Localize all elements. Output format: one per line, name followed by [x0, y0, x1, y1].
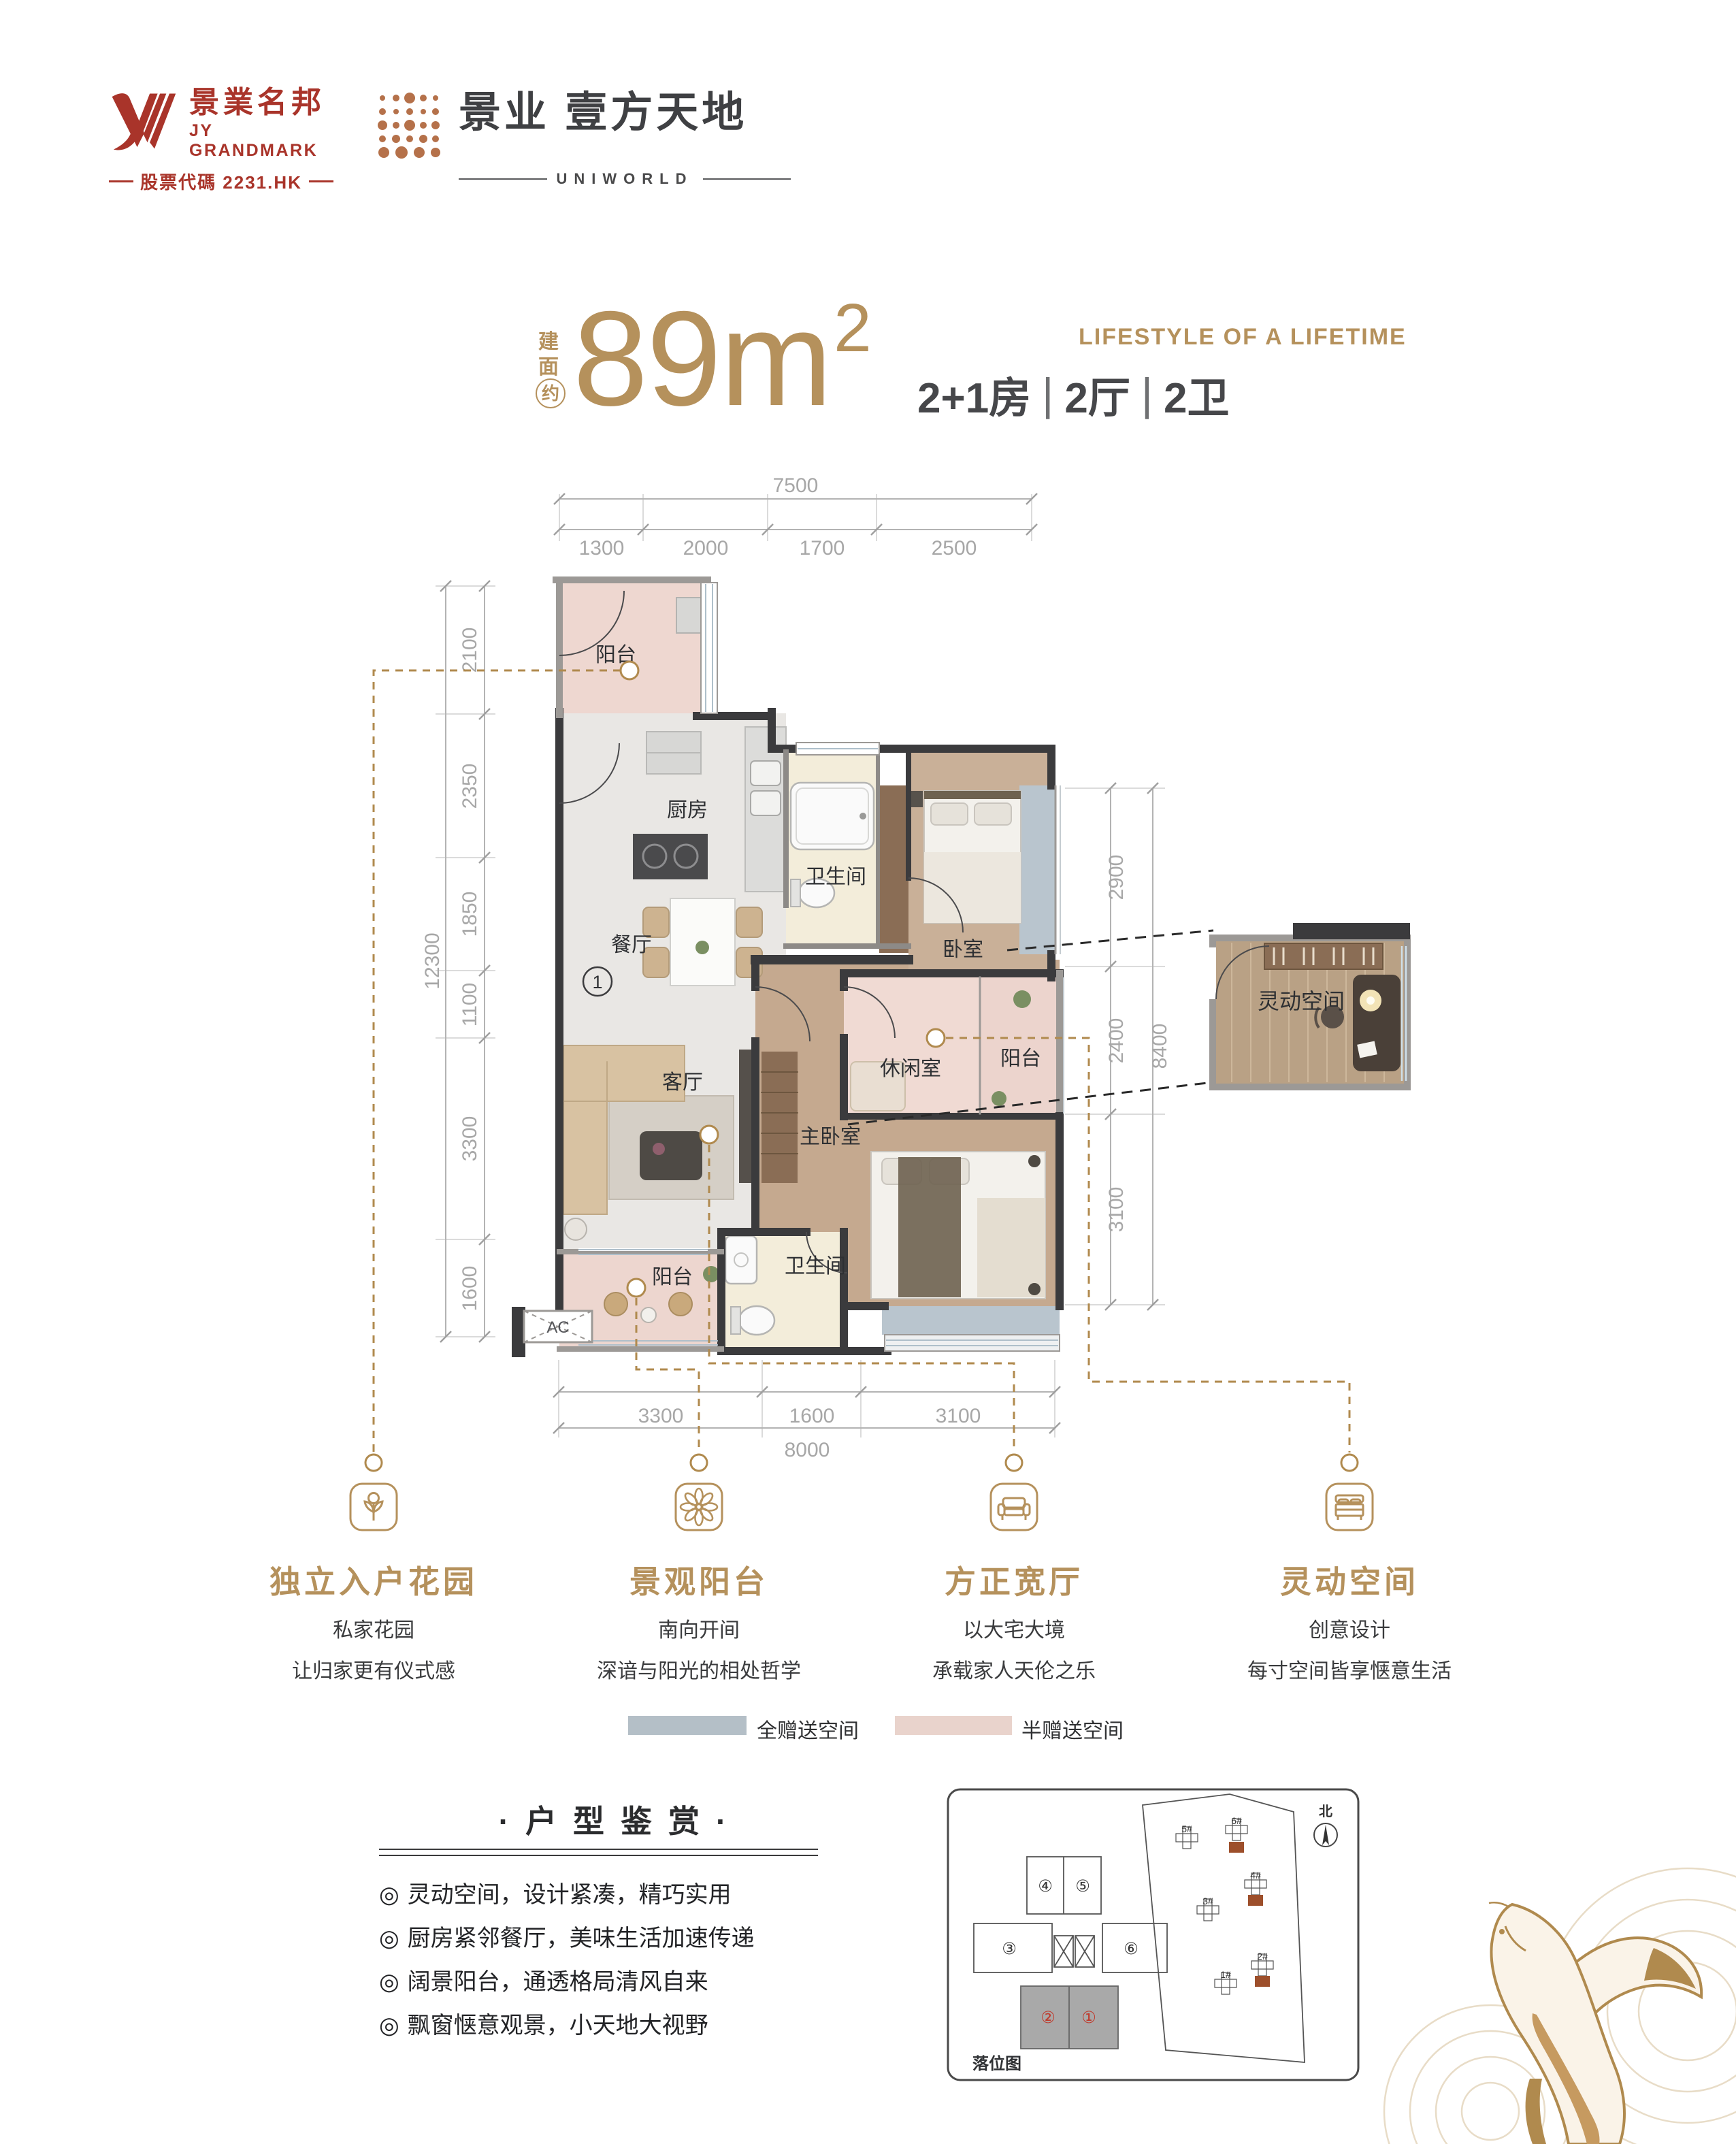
svg-text:②: ②: [1041, 2009, 1055, 2027]
svg-text:4#: 4#: [1250, 1870, 1261, 1881]
svg-text:③: ③: [1002, 1940, 1017, 1958]
dim-bottom-1: 3300: [638, 1405, 684, 1427]
svg-text:⑤: ⑤: [1075, 1877, 1090, 1896]
dim-right-total: 8400: [1149, 1024, 1171, 1069]
feature-line1: 南向开间: [542, 1613, 855, 1643]
svg-text:⑥: ⑥: [1124, 1940, 1139, 1958]
feature-title: 灵动空间: [1193, 1557, 1506, 1602]
room-label-leisure: 休闲室: [880, 1058, 941, 1080]
ac-label: AC: [546, 1318, 569, 1337]
room-label-bath-bottom: 卫生间: [785, 1255, 846, 1278]
review-title: ·户型鉴赏·: [382, 1797, 859, 1842]
koi-fish-decoration: [1384, 1868, 1736, 2144]
dim-bottom-3: 3100: [936, 1405, 981, 1427]
dim-left-5: 3300: [459, 1116, 481, 1162]
flower-icon: [348, 1482, 399, 1532]
feature-title: 景观阳台: [542, 1557, 855, 1602]
legend-swatch-half-gift: [895, 1716, 1012, 1735]
svg-text:2#: 2#: [1257, 1951, 1268, 1962]
bed-icon: [1324, 1482, 1375, 1532]
dim-top-1: 1300: [579, 537, 625, 559]
dim-right-3: 3100: [1105, 1187, 1128, 1233]
dim-top-total: 7500: [773, 474, 819, 497]
feature-entry-garden: 独立入户花园 私家花园 让归家更有仪式感: [217, 1482, 530, 1684]
svg-text:3#: 3#: [1202, 1896, 1213, 1906]
svg-text:④: ④: [1038, 1877, 1053, 1896]
feature-view-balcony: 景观阳台 南向开间 深谙与阳光的相处哲学: [542, 1482, 855, 1684]
site-plan-caption: 落位图: [972, 2054, 1021, 2073]
dim-left-1: 2100: [459, 628, 481, 673]
review-divider: [379, 1849, 818, 1856]
room-label-bath-top: 卫生间: [805, 866, 866, 888]
review-item-2: ◎厨房紧邻餐厅，美味生活加速传递: [379, 1919, 755, 1953]
room-label-living: 客厅: [662, 1071, 703, 1094]
dim-top-2: 2000: [683, 537, 729, 559]
poster-page: 景業名邦 JY GRANDMARK 股票代碼 2231.HK 景业 壹方天地: [0, 0, 1736, 2144]
dim-bottom-total: 8000: [785, 1439, 830, 1461]
bullet-icon: ◎: [379, 1882, 399, 1908]
room-label-kitchen: 厨房: [667, 799, 708, 822]
review-item-3: ◎阔景阳台，通透格局清风自来: [379, 1963, 708, 1996]
feature-title: 独立入户花园: [217, 1557, 530, 1602]
feature-line2: 让归家更有仪式感: [217, 1654, 530, 1684]
bullet-icon: ◎: [379, 1969, 399, 1995]
dim-left-4: 1100: [459, 983, 481, 1027]
flex-room-label: 灵动空间: [1258, 989, 1345, 1013]
dim-left-3: 1850: [459, 892, 481, 937]
svg-text:1: 1: [592, 972, 602, 992]
room-label-bedroom: 卧室: [943, 939, 983, 961]
feature-square-hall: 方正宽厅 以大宅大境 承载家人天伦之乐: [857, 1482, 1170, 1684]
sofa-icon: [989, 1482, 1039, 1532]
bullet-icon: ◎: [379, 2013, 399, 2039]
dim-top-4: 2500: [932, 537, 977, 559]
feature-line2: 承载家人天伦之乐: [857, 1654, 1170, 1684]
bullet-icon: ◎: [379, 1926, 399, 1951]
dim-right-2: 2400: [1105, 1018, 1128, 1064]
room-label-balcony-right: 阳台: [1000, 1047, 1041, 1070]
feature-title: 方正宽厅: [857, 1557, 1170, 1602]
feature-line1: 以大宅大境: [857, 1613, 1170, 1643]
feature-line2: 每寸空间皆享惬意生活: [1193, 1654, 1506, 1684]
review-item-4: ◎飘窗惬意观景，小天地大视野: [379, 2007, 708, 2040]
room-label-balcony-bottom: 阳台: [652, 1266, 693, 1288]
dim-bottom-2: 1600: [789, 1405, 835, 1427]
feature-line1: 创意设计: [1193, 1613, 1506, 1643]
legend-label-full-gift: 全赠送空间: [757, 1714, 859, 1744]
site-plan: 北 ④ ⑤ ③ ⑥ ② ①: [948, 1789, 1358, 2080]
floorplan-canvas: AC 阳台 厨房 卫生间 卧室 餐厅 客厅 休闲室 阳台 主卧室 卫生间 阳台: [0, 0, 1736, 2144]
svg-text:5#: 5#: [1181, 1823, 1192, 1834]
dim-right-1: 2900: [1105, 855, 1128, 900]
room-label-master: 主卧室: [800, 1126, 861, 1148]
blossom-icon: [674, 1482, 724, 1532]
feature-line2: 深谙与阳光的相处哲学: [542, 1654, 855, 1684]
room-label-dining: 餐厅: [611, 934, 652, 956]
dim-left-6: 1600: [459, 1266, 481, 1312]
svg-text:1#: 1#: [1220, 1969, 1231, 1980]
legend-swatch-full-gift: [628, 1716, 747, 1735]
svg-text:6#: 6#: [1231, 1815, 1242, 1826]
legend-label-half-gift: 半赠送空间: [1021, 1714, 1124, 1744]
dim-left-2: 2350: [459, 764, 481, 809]
feature-line1: 私家花园: [217, 1613, 530, 1643]
north-label: 北: [1319, 1804, 1332, 1819]
dim-top-3: 1700: [800, 537, 845, 559]
dim-left-total: 12300: [421, 932, 444, 989]
feature-flex-space: 灵动空间 创意设计 每寸空间皆享惬意生活: [1193, 1482, 1506, 1684]
review-item-1: ◎灵动空间，设计紧凑，精巧实用: [379, 1876, 732, 1909]
svg-text:①: ①: [1081, 2009, 1096, 2027]
